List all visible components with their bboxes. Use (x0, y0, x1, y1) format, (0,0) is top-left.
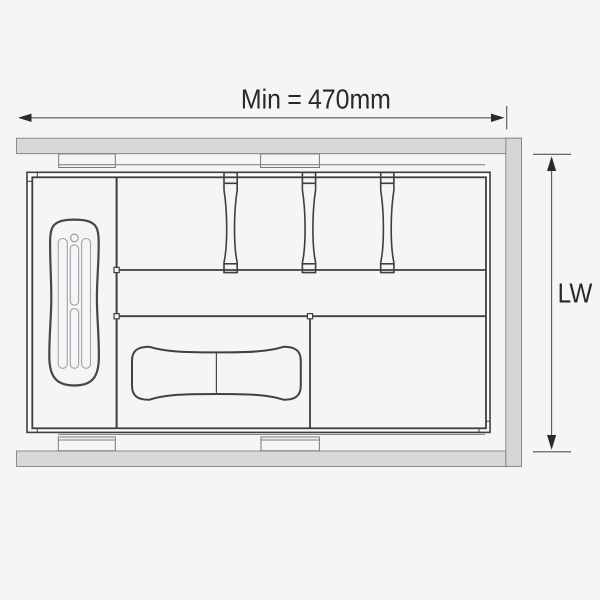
svg-text:Min = 470mm: Min = 470mm (241, 84, 391, 115)
svg-text:LW: LW (558, 277, 593, 309)
